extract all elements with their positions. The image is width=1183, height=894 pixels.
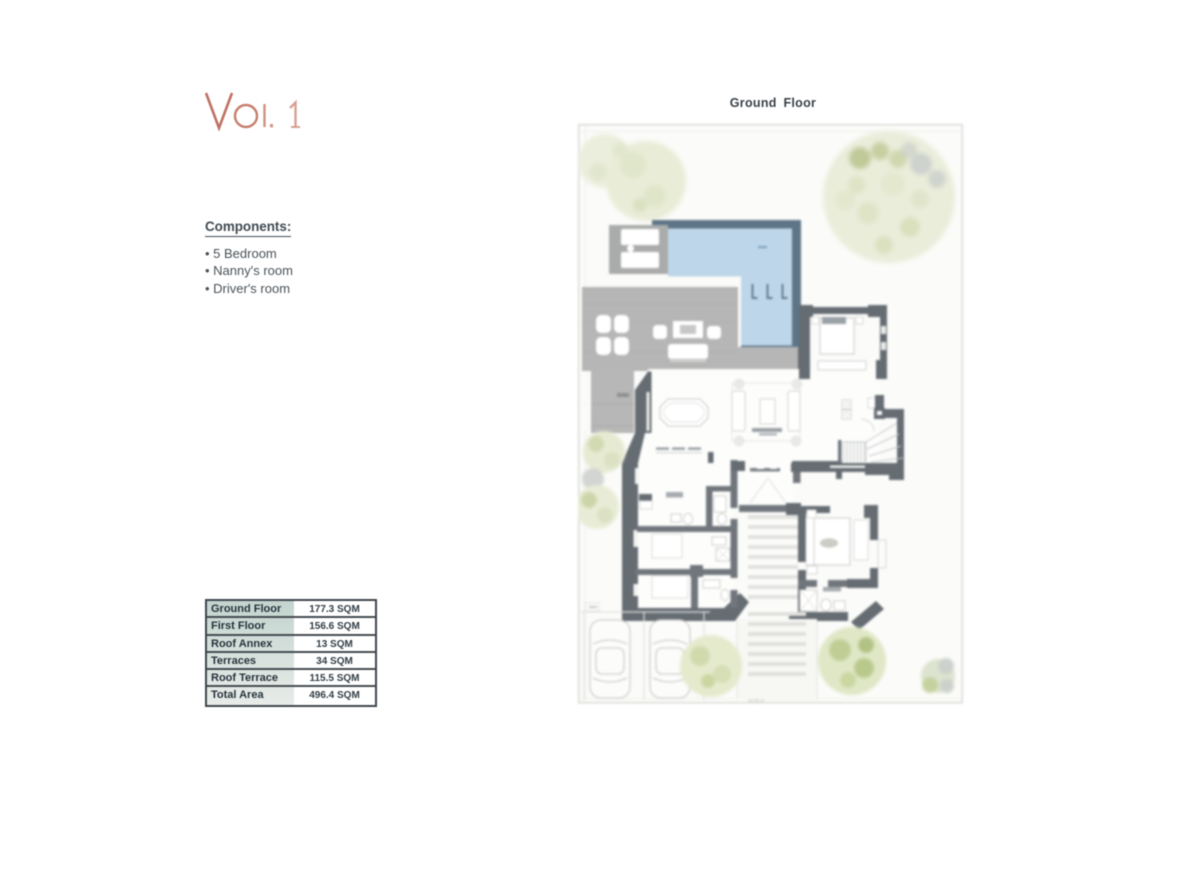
svg-text:10.00 m: 10.00 m [748, 698, 765, 703]
